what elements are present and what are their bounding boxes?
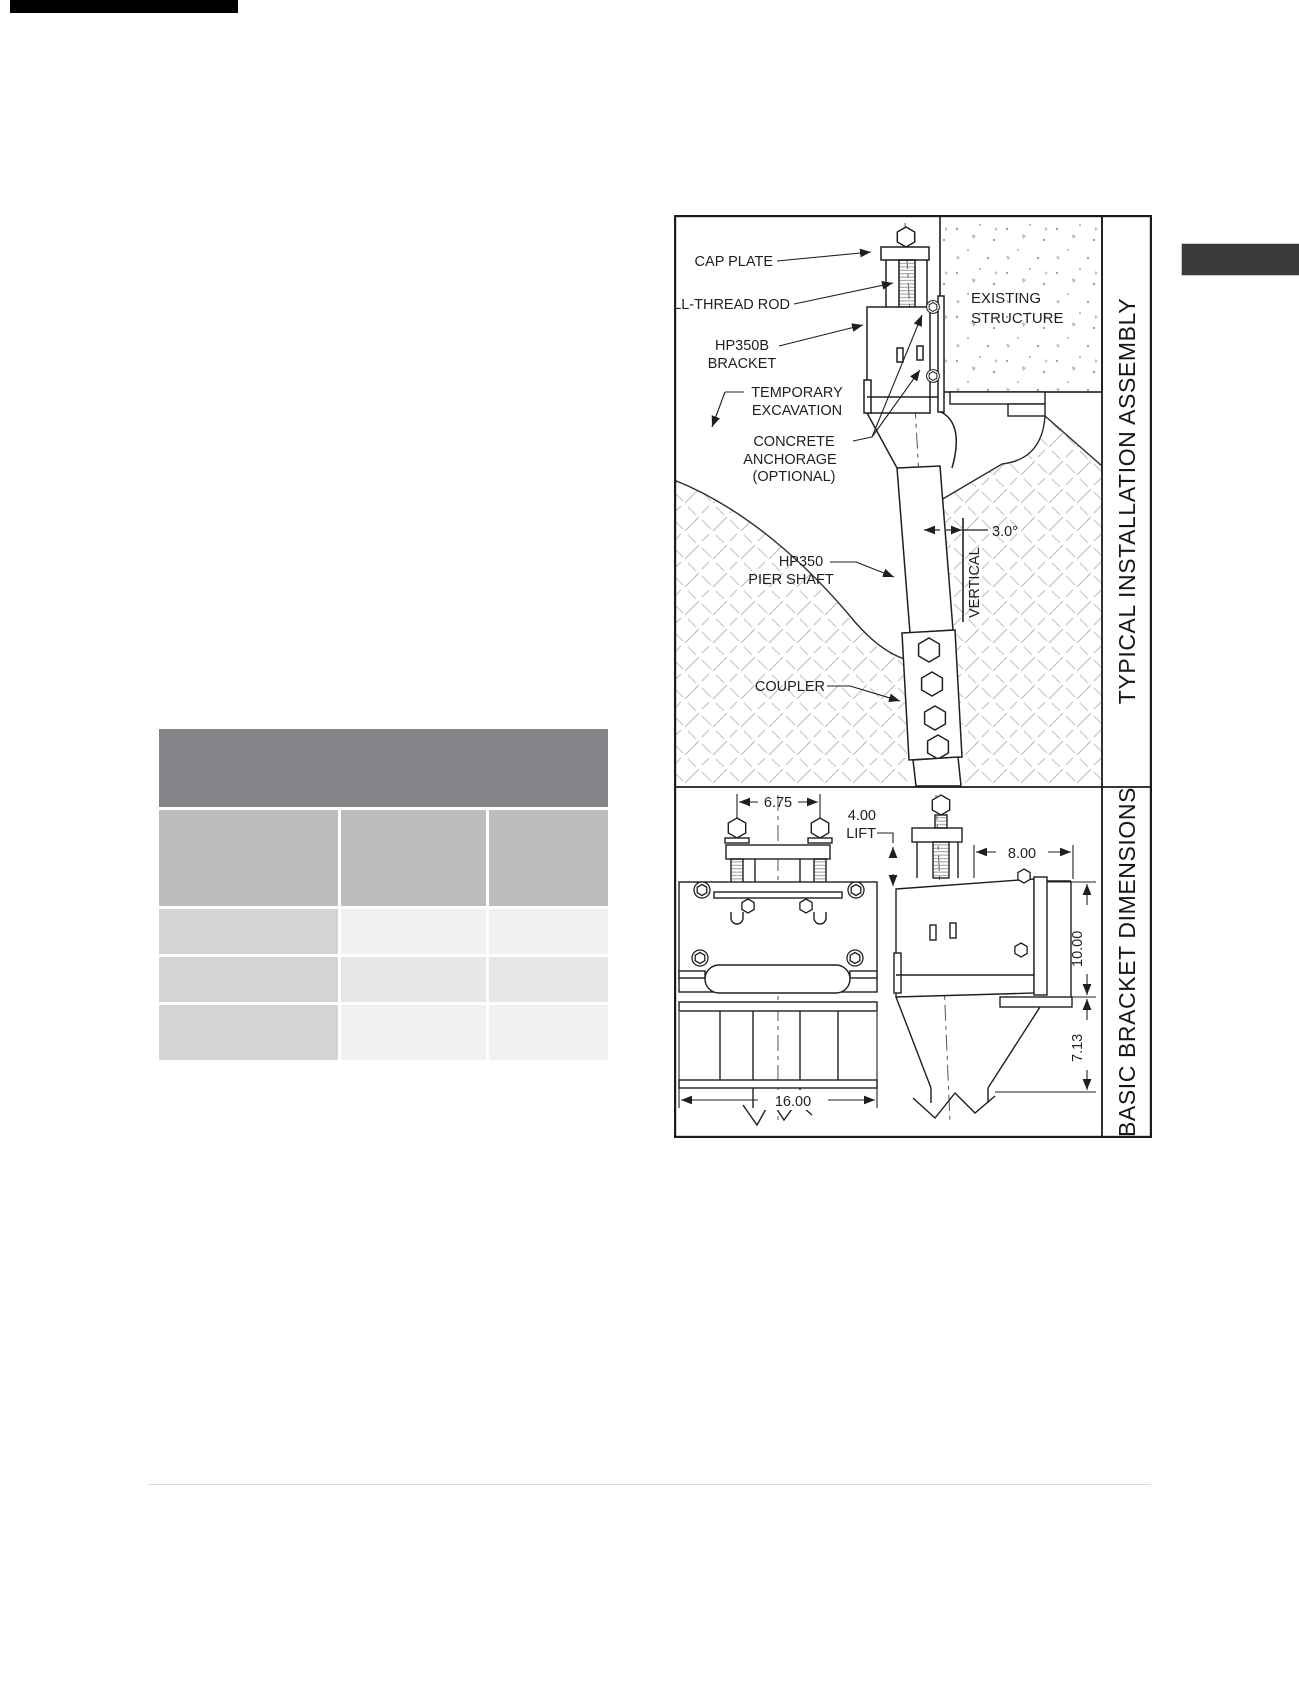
top-edge-bar: [10, 0, 238, 13]
existing-structure-block: EXISTING STRUCTURE: [940, 216, 1102, 416]
technical-drawing: EXISTING STRUCTURE: [674, 215, 1152, 1138]
table-col-header-3: [489, 810, 608, 906]
table-row3-cell3: [489, 1005, 608, 1060]
coupler: [902, 630, 962, 786]
label-excavation-1: TEMPORARY: [751, 385, 843, 401]
label-coupler: COUPLER: [755, 679, 825, 695]
front-view: [679, 795, 877, 1125]
table-row1-cell2: [341, 909, 486, 954]
table-row2-cell3: [489, 957, 608, 1002]
panel-title-dimensions: BASIC BRACKET DIMENSIONS: [1114, 787, 1140, 1137]
pier-shaft: [897, 466, 953, 633]
label-vertical: VERTICAL: [967, 547, 983, 618]
footer-rule: [148, 1484, 1151, 1485]
label-excavation-2: EXCAVATION: [752, 403, 842, 419]
label-anchorage-1: CONCRETE: [753, 434, 835, 450]
table-row2-label: [159, 957, 338, 1002]
table-merged-header: [159, 729, 608, 807]
label-existing-structure-1: EXISTING: [971, 290, 1041, 307]
label-existing-structure-2: STRUCTURE: [971, 310, 1064, 327]
table-row1-cell3: [489, 909, 608, 954]
dim-heel-drop: 7.13: [1070, 1034, 1086, 1062]
dim-rod-spacing: 6.75: [764, 795, 792, 811]
table-col-header-2: [341, 810, 486, 906]
dim-lift-2: LIFT: [846, 826, 876, 842]
table-row2-cell2: [341, 957, 486, 1002]
label-anchorage-3: (OPTIONAL): [753, 469, 836, 485]
document-page: EXISTING STRUCTURE: [0, 0, 1299, 1692]
label-all-thread-rod: ALL-THREAD ROD: [674, 297, 790, 313]
table-row3-cell2: [341, 1005, 486, 1060]
side-view: [894, 795, 1072, 1122]
label-bracket-1: HP350B: [715, 338, 769, 354]
label-bracket-2: BRACKET: [708, 356, 777, 372]
soil-hatch: [674, 416, 1102, 787]
table-row3-label: [159, 1005, 338, 1060]
panel-title-assembly: TYPICAL INSTALLATION ASSEMBLY: [1114, 298, 1140, 704]
dim-bracket-height: 10.00: [1070, 931, 1086, 967]
spec-table: [159, 729, 608, 1060]
label-batter-angle: 3.0°: [992, 524, 1018, 540]
page-corner-tab: [1181, 243, 1299, 276]
label-cap-plate: CAP PLATE: [695, 254, 774, 270]
table-col-header-1: [159, 810, 338, 906]
dim-bracket-width: 16.00: [775, 1094, 811, 1110]
label-pier-1: HP350: [779, 554, 823, 570]
table-row1-label: [159, 909, 338, 954]
label-pier-2: PIER SHAFT: [748, 572, 834, 588]
dim-lift-1: 4.00: [848, 808, 876, 824]
label-anchorage-2: ANCHORAGE: [743, 452, 837, 468]
dim-bracket-depth: 8.00: [1008, 846, 1036, 862]
